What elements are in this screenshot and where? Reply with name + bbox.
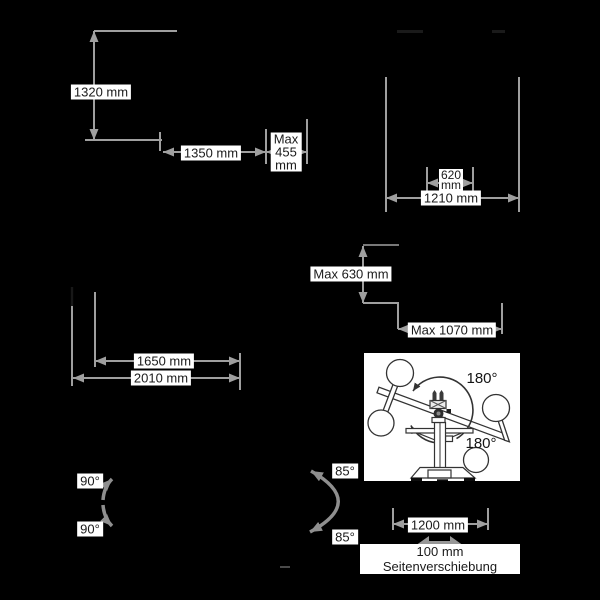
angle-label-90-up: 90° bbox=[77, 474, 103, 489]
dim-label-1650: 1650 mm bbox=[134, 354, 194, 369]
dim-label-1200: 1200 mm bbox=[408, 518, 468, 533]
scan-artifact bbox=[280, 566, 290, 568]
dim-label-620: 620 mm bbox=[439, 169, 463, 191]
dim-label-1320: 1320 mm bbox=[71, 85, 131, 100]
dimension-diagram: { "scene": { "background": "#000000", "l… bbox=[0, 0, 600, 600]
dim-label-side-shift: 100 mm Seitenverschiebung bbox=[360, 544, 520, 574]
dim-label-max-630: Max 630 mm bbox=[310, 267, 391, 282]
dim-group-middle-right bbox=[363, 245, 502, 334]
scan-artifact bbox=[492, 30, 505, 33]
device-drawing: 180° 180° bbox=[364, 353, 520, 481]
device-pad bbox=[387, 360, 414, 387]
dim-label-1350: 1350 mm bbox=[181, 146, 241, 161]
device-lever bbox=[446, 436, 453, 442]
rotation-arrow-90-down bbox=[103, 505, 112, 526]
pivot-flag bbox=[447, 409, 452, 413]
device-foot bbox=[464, 478, 475, 481]
ref-line-dark-cap bbox=[71, 287, 73, 306]
angle-label-85-up: 85° bbox=[332, 464, 358, 479]
ref-corner bbox=[363, 303, 398, 329]
rotation-angle-top-label: 180° bbox=[466, 370, 497, 387]
dim-label-2010: 2010 mm bbox=[131, 371, 191, 386]
dim-label-max-1070: Max 1070 mm bbox=[408, 323, 496, 338]
device-foot bbox=[411, 478, 422, 481]
rotation-arc-85 bbox=[310, 471, 338, 532]
angle-label-90-down: 90° bbox=[77, 522, 103, 537]
device-pad bbox=[368, 410, 394, 436]
rotation-arrow-90-up bbox=[103, 479, 112, 500]
device-foot bbox=[437, 479, 448, 481]
rotation-angle-bottom-label: 180° bbox=[465, 435, 496, 452]
pivot-collar bbox=[432, 418, 445, 423]
angle-group-85 bbox=[310, 471, 338, 532]
diagram-stage: 180° 180° 1320 mm 1350 mm Max 455 mm 620… bbox=[0, 0, 600, 600]
device-pad bbox=[483, 395, 510, 422]
dim-label-max-455: Max 455 mm bbox=[271, 133, 302, 172]
scan-artifact bbox=[397, 30, 423, 33]
angle-label-85-down: 85° bbox=[332, 530, 358, 545]
dim-label-1210: 1210 mm bbox=[421, 191, 481, 206]
device-base bbox=[411, 468, 475, 479]
pivot-prong bbox=[440, 390, 444, 401]
angle-group-90 bbox=[103, 479, 112, 526]
pivot-prong bbox=[433, 390, 437, 401]
device-illustration: 180° 180° bbox=[364, 353, 520, 481]
